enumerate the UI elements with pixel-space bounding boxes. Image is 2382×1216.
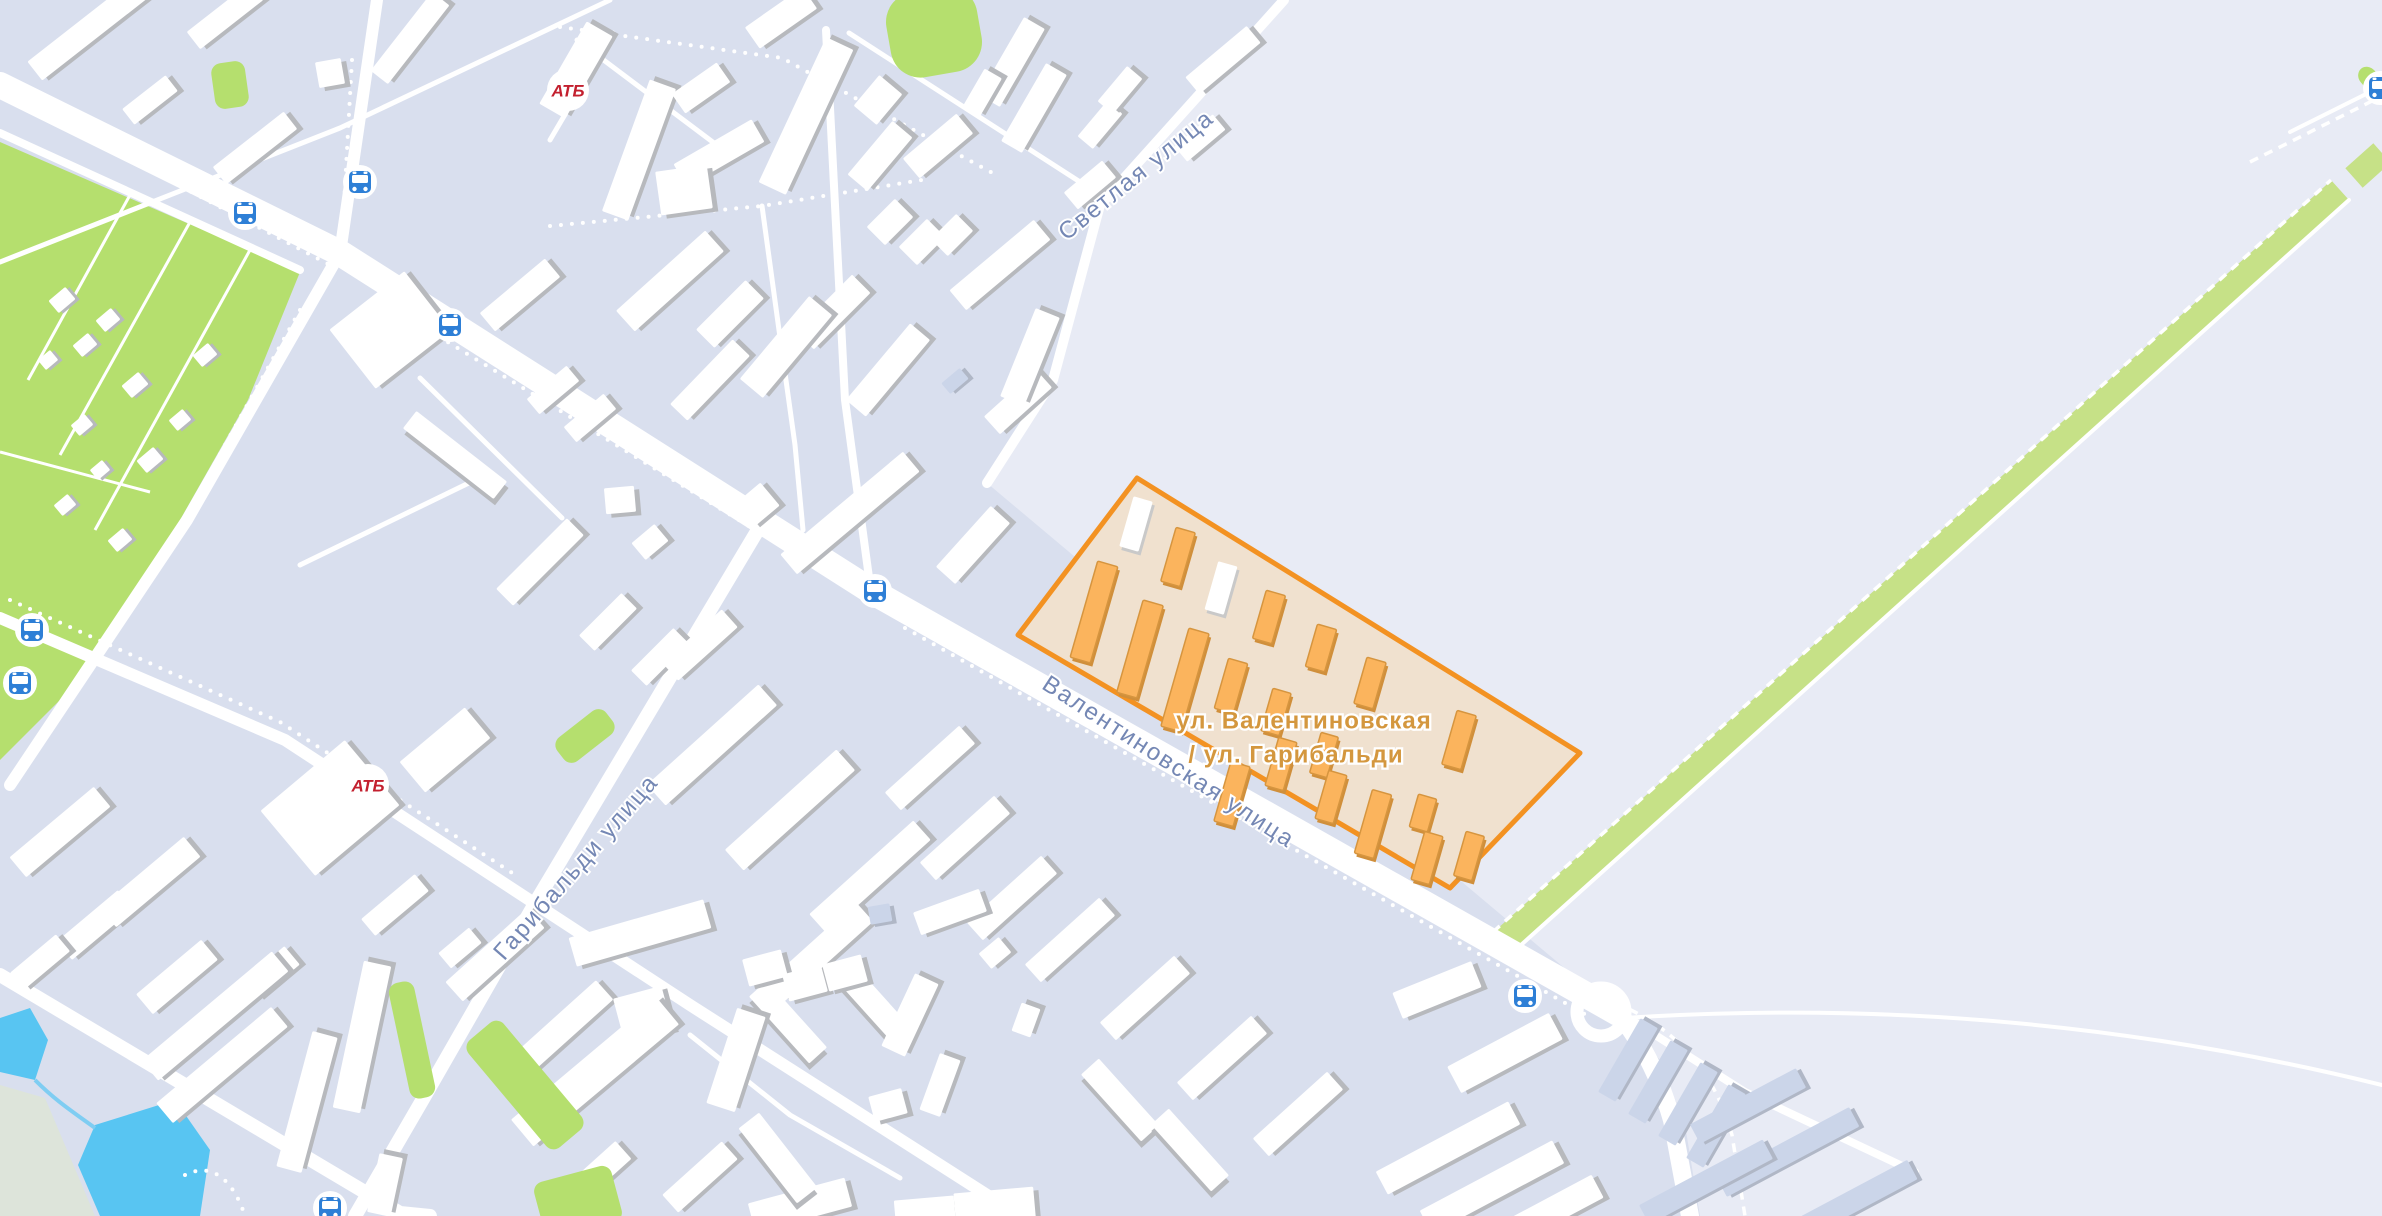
building [655, 164, 718, 219]
svg-text:/ ул. Гарибальди: / ул. Гарибальди [1188, 741, 1403, 768]
building [315, 57, 351, 92]
atb-store-badge[interactable]: АТБ [547, 69, 589, 111]
bus-stop-icon[interactable] [1508, 979, 1542, 1013]
bus-stop-icon[interactable] [3, 666, 37, 700]
map-canvas[interactable]: Светлая улица Валентиновская улица Гариб… [0, 0, 2382, 1216]
bus-stop-icon[interactable] [15, 613, 49, 647]
bus-stop-icon[interactable] [228, 196, 262, 230]
svg-text:АТБ: АТБ [351, 776, 385, 795]
bus-stop-icon[interactable] [858, 574, 892, 608]
garage-building [868, 903, 897, 928]
bus-stop-icon[interactable] [343, 165, 377, 199]
green-patch [210, 60, 250, 110]
bus-stop-icon[interactable] [433, 308, 467, 342]
atb-store-badge[interactable]: АТБ [347, 764, 389, 806]
svg-text:ул. Валентиновская: ул. Валентиновская [1176, 707, 1432, 734]
svg-text:АТБ: АТБ [551, 81, 585, 100]
building [604, 485, 641, 518]
